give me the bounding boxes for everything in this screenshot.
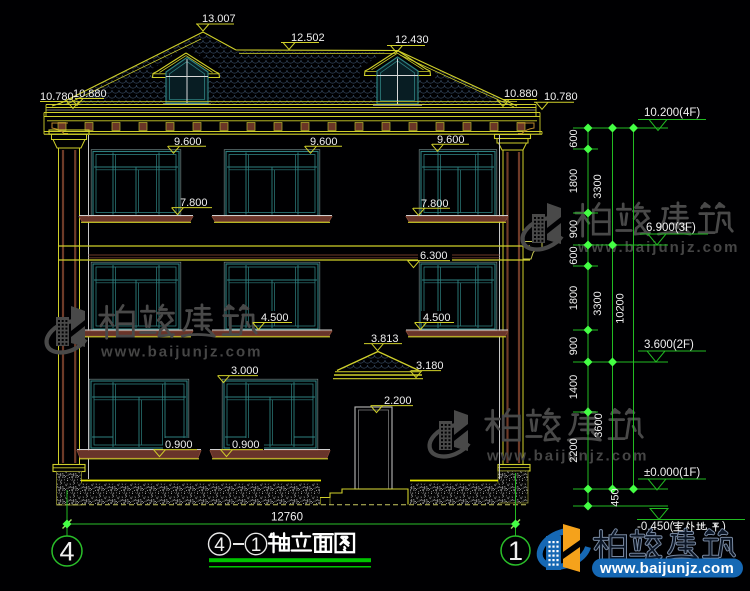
svg-text:1: 1 [508,536,523,566]
svg-text:12760: 12760 [271,512,303,524]
svg-text:www.baijunjz.com: www.baijunjz.com [577,239,739,256]
svg-text:3300: 3300 [592,174,604,198]
svg-text:±0.000(1F): ±0.000(1F) [644,467,700,479]
svg-text:www.baijunjz.com: www.baijunjz.com [100,344,262,361]
svg-text:10.780: 10.780 [544,91,578,103]
svg-text:1800: 1800 [568,286,580,310]
svg-text:12.430: 12.430 [395,34,429,46]
svg-text:13.007: 13.007 [202,13,236,25]
svg-text:www.baijunjz.com: www.baijunjz.com [599,560,734,577]
svg-text:4: 4 [214,535,225,556]
svg-text:10.200(4F): 10.200(4F) [644,107,700,119]
svg-text:1400: 1400 [568,375,580,399]
svg-text:3300: 3300 [592,291,604,315]
svg-text:900: 900 [568,337,580,355]
svg-text:900: 900 [568,220,580,238]
svg-text:3.600(2F): 3.600(2F) [644,339,694,351]
svg-text:1800: 1800 [568,169,580,193]
svg-text:10200: 10200 [615,293,627,324]
svg-text:1: 1 [251,535,262,556]
svg-text:600: 600 [568,246,580,264]
svg-text:6.900(3F): 6.900(3F) [646,222,696,234]
svg-text:3600: 3600 [593,413,605,437]
svg-text:-0.450(: -0.450( [637,521,674,533]
svg-text:4: 4 [59,537,74,567]
svg-text:450: 450 [610,488,622,506]
svg-text:2200: 2200 [568,438,580,462]
svg-text:600: 600 [568,129,580,147]
svg-text:10.880: 10.880 [504,88,538,100]
